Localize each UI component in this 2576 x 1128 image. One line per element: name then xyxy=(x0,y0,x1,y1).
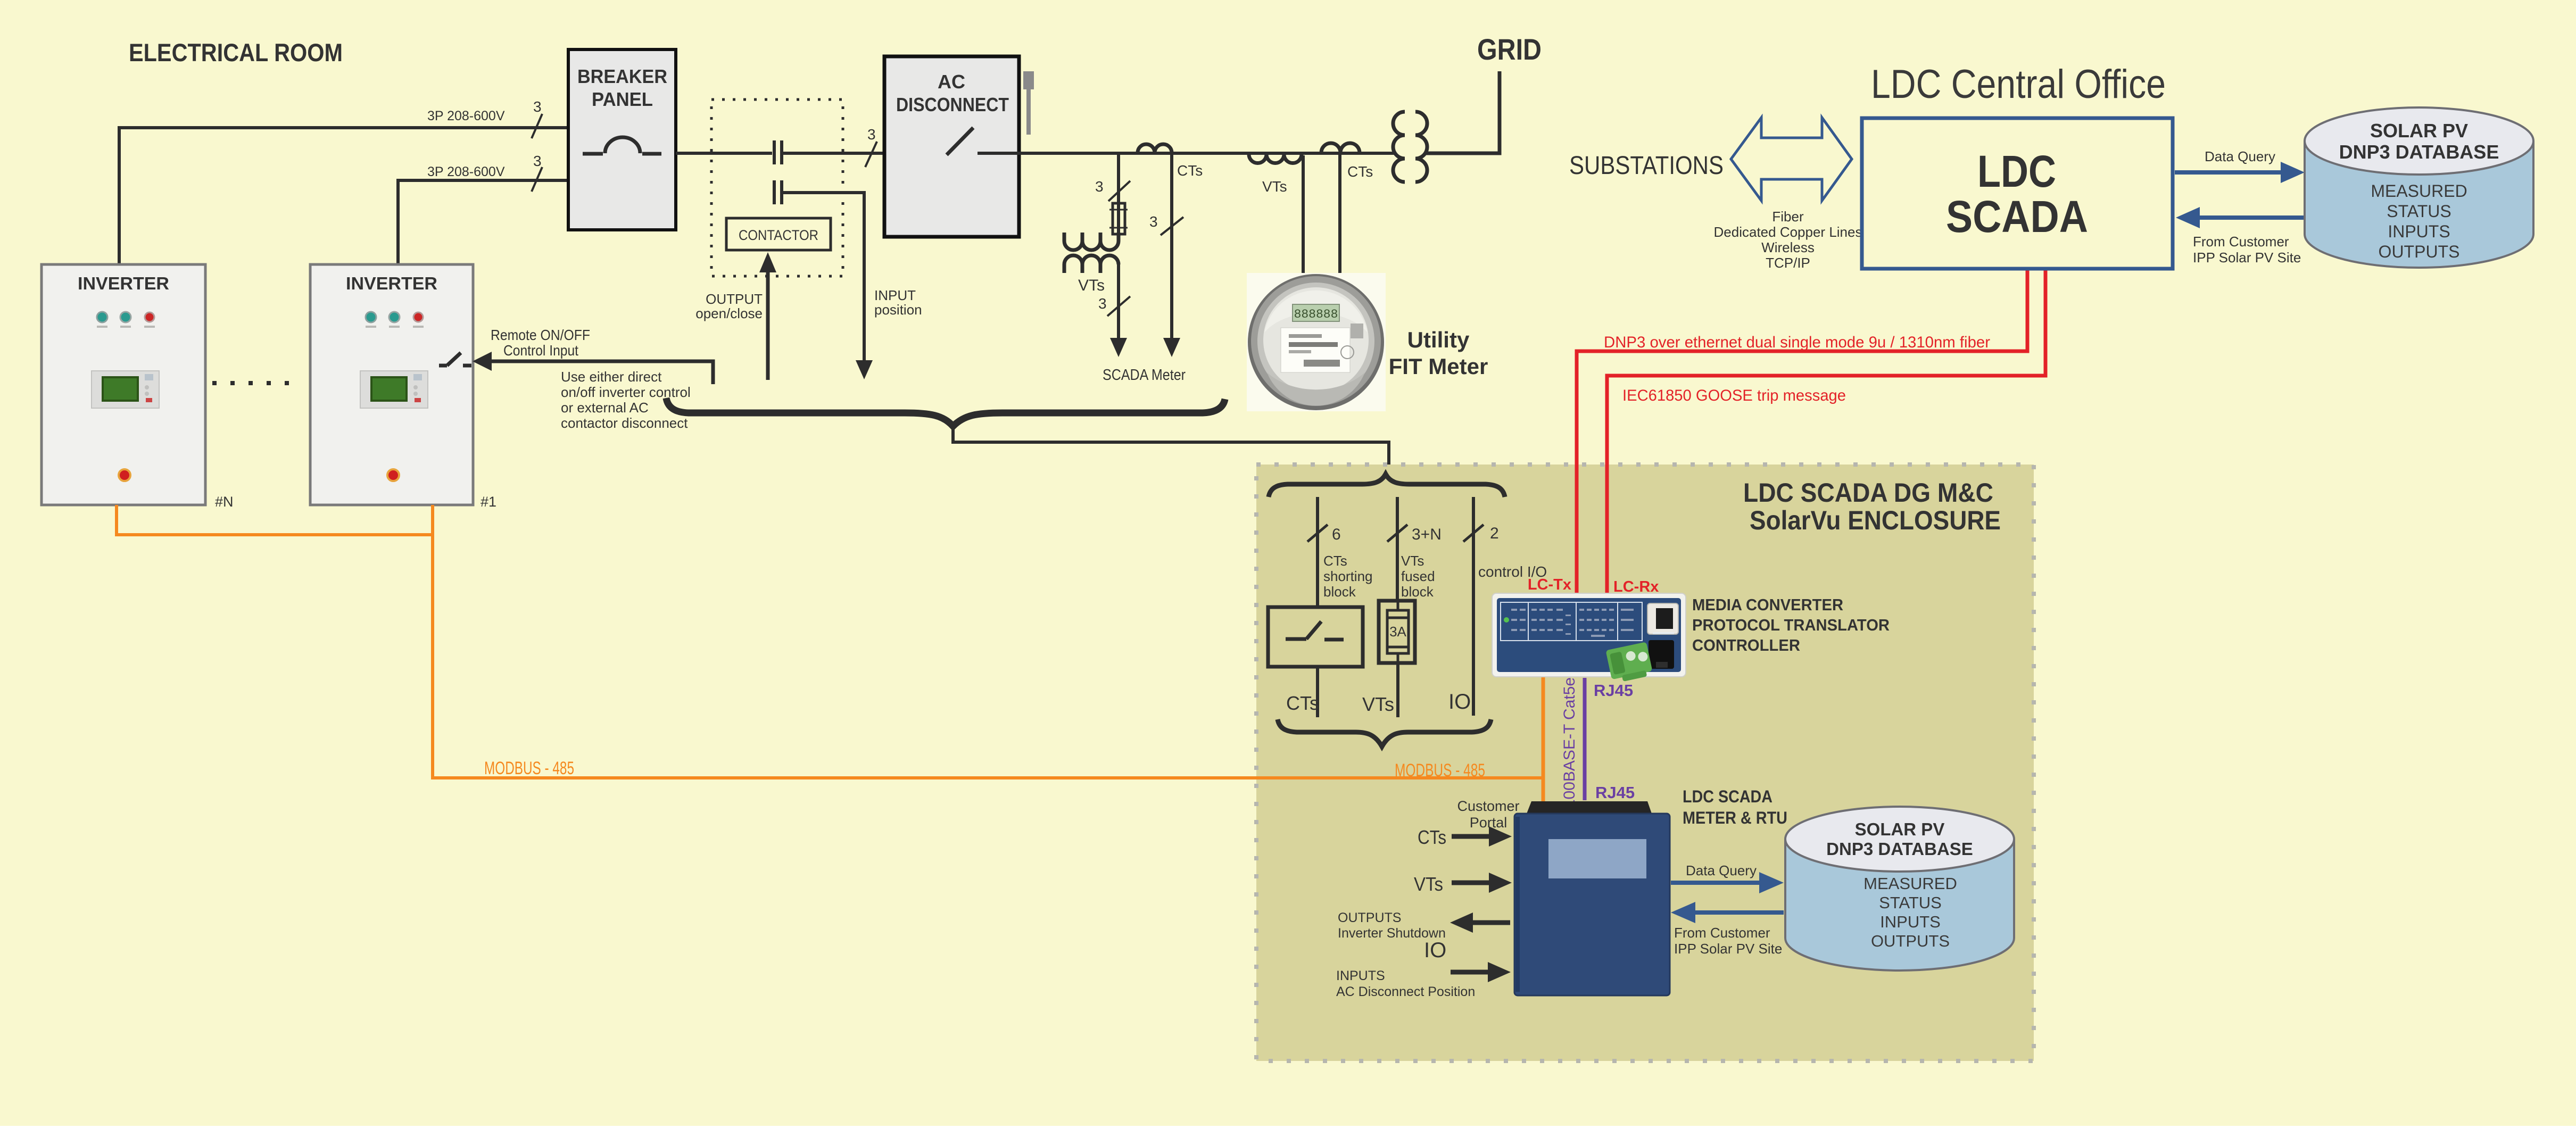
svg-text:3: 3 xyxy=(533,98,542,115)
svg-text:SCADA Meter: SCADA Meter xyxy=(1103,367,1186,384)
svg-text:fused: fused xyxy=(1401,568,1435,584)
svg-text:VTs: VTs xyxy=(1362,693,1394,715)
svg-text:on/off inverter control: on/off inverter control xyxy=(561,384,691,400)
svg-text:shorting: shorting xyxy=(1323,568,1373,584)
svg-text:contactor disconnect: contactor disconnect xyxy=(561,415,688,431)
svg-text:INVERTER: INVERTER xyxy=(78,273,169,293)
svg-text:Utility: Utility xyxy=(1407,327,1470,352)
svg-text:888888: 888888 xyxy=(1294,308,1338,321)
svg-text:#1: #1 xyxy=(481,494,496,510)
svg-text:MEASURED: MEASURED xyxy=(1863,874,1957,893)
svg-text:Dedicated Copper Lines: Dedicated Copper Lines xyxy=(1714,224,1862,240)
svg-text:SolarVu ENCLOSURE: SolarVu ENCLOSURE xyxy=(1750,505,2001,535)
svg-text:6: 6 xyxy=(1332,526,1341,543)
svg-text:3A: 3A xyxy=(1389,624,1406,640)
svg-text:PROTOCOL TRANSLATOR: PROTOCOL TRANSLATOR xyxy=(1692,616,1890,634)
svg-text:FIT Meter: FIT Meter xyxy=(1389,354,1488,379)
svg-text:OUTPUTS: OUTPUTS xyxy=(1338,910,1401,925)
svg-text:100BASE-T Cat5e: 100BASE-T Cat5e xyxy=(1561,677,1578,808)
svg-text:3: 3 xyxy=(1149,213,1158,230)
svg-text:VTs: VTs xyxy=(1401,553,1424,569)
svg-text:position: position xyxy=(874,302,922,318)
svg-text:CTs: CTs xyxy=(1323,553,1347,569)
svg-text:LDC: LDC xyxy=(1977,146,2056,196)
svg-text:3+N: 3+N xyxy=(1412,526,1442,543)
svg-text:From Customer: From Customer xyxy=(1674,925,1770,941)
svg-text:INPUTS: INPUTS xyxy=(1336,968,1385,983)
svg-text:INPUT: INPUT xyxy=(874,287,916,303)
svg-text:3: 3 xyxy=(533,153,542,169)
svg-text:2: 2 xyxy=(1490,525,1499,542)
svg-text:block: block xyxy=(1401,584,1434,600)
svg-text:ELECTRICAL ROOM: ELECTRICAL ROOM xyxy=(129,38,343,67)
svg-text:#N: #N xyxy=(215,494,234,510)
svg-text:From Customer: From Customer xyxy=(2193,234,2289,250)
svg-text:open/close: open/close xyxy=(695,305,763,321)
svg-text:3: 3 xyxy=(1098,295,1107,312)
svg-text:LC-Tx: LC-Tx xyxy=(1528,576,1571,593)
svg-text:CTs: CTs xyxy=(1418,826,1446,848)
svg-text:OUTPUTS: OUTPUTS xyxy=(1871,932,1950,950)
svg-text:Data Query: Data Query xyxy=(1686,862,1757,878)
svg-text:SCADA: SCADA xyxy=(1946,192,2088,242)
svg-text:Control Input: Control Input xyxy=(503,342,578,359)
svg-text:PANEL: PANEL xyxy=(592,88,653,110)
svg-text:CTs: CTs xyxy=(1347,163,1373,180)
svg-text:IPP Solar PV Site: IPP Solar PV Site xyxy=(2193,250,2301,266)
svg-text:IPP Solar PV Site: IPP Solar PV Site xyxy=(1674,941,1782,957)
svg-text:VTs: VTs xyxy=(1078,277,1105,294)
svg-text:RJ45: RJ45 xyxy=(1595,783,1635,802)
svg-text:VTs: VTs xyxy=(1414,873,1443,895)
svg-text:MEDIA CONVERTER: MEDIA CONVERTER xyxy=(1692,595,1843,614)
svg-text:SOLAR PV: SOLAR PV xyxy=(2370,120,2468,142)
svg-text:CONTACTOR: CONTACTOR xyxy=(739,227,818,243)
svg-text:CONTROLLER: CONTROLLER xyxy=(1692,636,1800,654)
svg-text:3P 208-600V: 3P 208-600V xyxy=(427,109,505,123)
svg-text:Remote ON/OFF: Remote ON/OFF xyxy=(491,327,590,343)
svg-text:Use either direct: Use either direct xyxy=(561,369,662,385)
svg-text:Fiber: Fiber xyxy=(1772,209,1804,225)
svg-text:DNP3 DATABASE: DNP3 DATABASE xyxy=(1826,839,1973,859)
svg-text:3: 3 xyxy=(867,126,876,143)
svg-text:STATUS: STATUS xyxy=(1879,893,1942,912)
svg-text:LDC Central Office: LDC Central Office xyxy=(1871,62,2166,107)
svg-text:METER & RTU: METER & RTU xyxy=(1683,808,1787,827)
svg-text:VTs: VTs xyxy=(1262,178,1287,195)
svg-text:SUBSTATIONS: SUBSTATIONS xyxy=(1569,152,1724,180)
svg-text:INVERTER: INVERTER xyxy=(346,273,437,293)
svg-text:IO: IO xyxy=(1424,939,1446,962)
svg-text:LDC SCADA: LDC SCADA xyxy=(1683,787,1772,806)
svg-text:OUTPUTS: OUTPUTS xyxy=(2379,242,2460,261)
svg-text:or external AC: or external AC xyxy=(561,400,649,416)
svg-text:BREAKER: BREAKER xyxy=(577,65,667,87)
svg-text:CTs: CTs xyxy=(1177,162,1203,179)
svg-text:OUTPUT: OUTPUT xyxy=(706,291,763,307)
svg-text:LDC SCADA DG M&C: LDC SCADA DG M&C xyxy=(1743,478,1993,508)
svg-text:DNP3 over ethernet dual single: DNP3 over ethernet dual single mode 9u /… xyxy=(1604,334,1990,351)
svg-text:IEC61850 GOOSE trip message: IEC61850 GOOSE trip message xyxy=(1622,387,1846,404)
svg-text:Data Query: Data Query xyxy=(2205,148,2275,164)
svg-text:DNP3 DATABASE: DNP3 DATABASE xyxy=(2339,141,2499,163)
svg-text:AC Disconnect Position: AC Disconnect Position xyxy=(1336,984,1475,999)
svg-text:STATUS: STATUS xyxy=(2387,202,2451,221)
svg-text:TCP/IP: TCP/IP xyxy=(1766,255,1810,271)
svg-text:INPUTS: INPUTS xyxy=(1880,913,1941,931)
svg-text:IO: IO xyxy=(1448,690,1471,714)
svg-text:3P 208-600V: 3P 208-600V xyxy=(427,164,505,179)
svg-text:GRID: GRID xyxy=(1477,32,1542,66)
svg-text:RJ45: RJ45 xyxy=(1594,681,1633,700)
svg-text:INPUTS: INPUTS xyxy=(2388,222,2450,241)
svg-text:Customer: Customer xyxy=(1457,798,1519,814)
svg-text:3: 3 xyxy=(1095,178,1104,195)
svg-text:block: block xyxy=(1323,584,1356,600)
svg-text:Portal: Portal xyxy=(1470,815,1508,831)
svg-text:SOLAR PV: SOLAR PV xyxy=(1855,819,1945,839)
svg-text:DISCONNECT: DISCONNECT xyxy=(896,94,1009,115)
svg-text:Wireless: Wireless xyxy=(1761,239,1815,255)
svg-text:CTs: CTs xyxy=(1286,692,1319,714)
svg-text:MODBUS - 485: MODBUS - 485 xyxy=(484,758,574,778)
svg-text:MEASURED: MEASURED xyxy=(2371,181,2467,201)
svg-text:AC: AC xyxy=(938,71,965,93)
